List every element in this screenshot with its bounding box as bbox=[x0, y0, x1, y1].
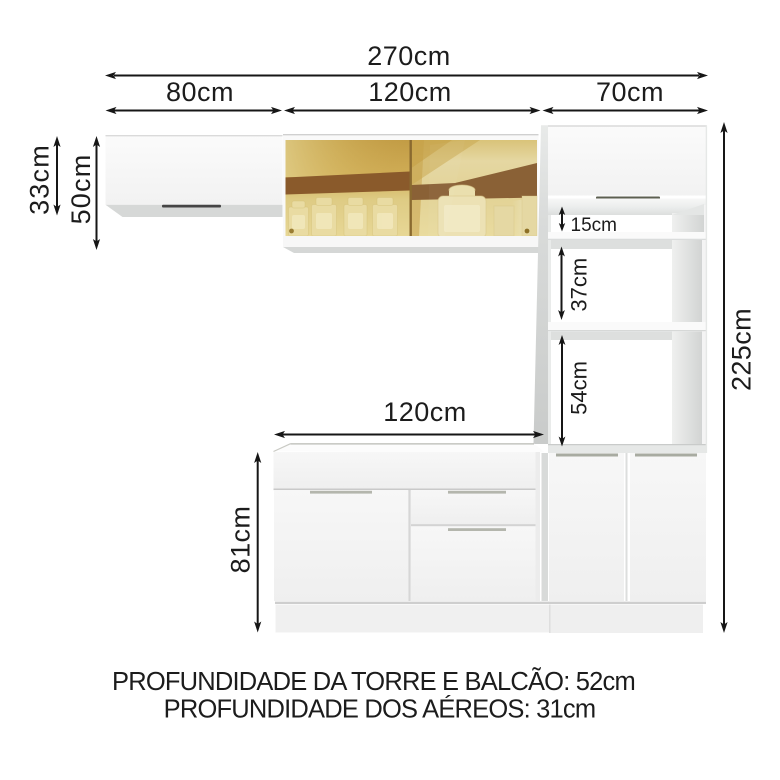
svg-text:120cm: 120cm bbox=[383, 397, 467, 427]
svg-text:33cm: 33cm bbox=[25, 144, 55, 215]
svg-text:15cm: 15cm bbox=[571, 215, 617, 236]
svg-text:70cm: 70cm bbox=[596, 77, 664, 107]
svg-text:37cm: 37cm bbox=[566, 258, 591, 312]
svg-text:225cm: 225cm bbox=[727, 308, 757, 391]
svg-text:54cm: 54cm bbox=[566, 361, 591, 415]
svg-text:PROFUNDIDADE DA TORRE E BALCÃO: PROFUNDIDADE DA TORRE E BALCÃO: 52cm bbox=[112, 667, 635, 696]
svg-text:120cm: 120cm bbox=[368, 77, 452, 107]
svg-text:PROFUNDIDADE DOS AÉREOS: 31cm: PROFUNDIDADE DOS AÉREOS: 31cm bbox=[164, 695, 596, 724]
svg-text:80cm: 80cm bbox=[166, 77, 234, 107]
svg-text:270cm: 270cm bbox=[367, 41, 451, 71]
svg-text:81cm: 81cm bbox=[226, 506, 256, 574]
svg-text:50cm: 50cm bbox=[66, 154, 96, 225]
